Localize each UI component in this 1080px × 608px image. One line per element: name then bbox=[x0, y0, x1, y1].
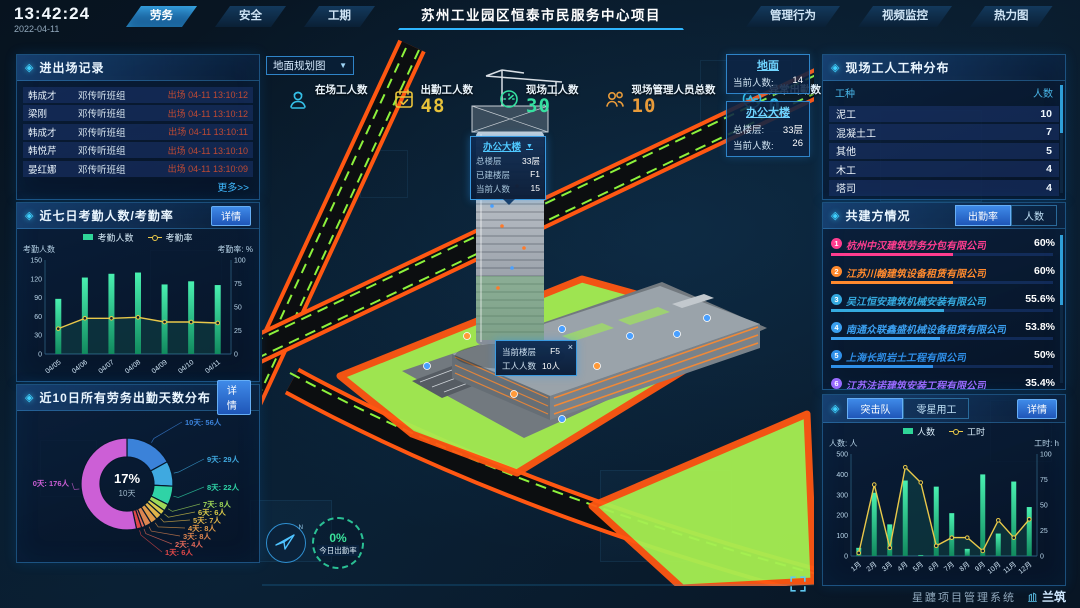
exit-event: 出场 04-11 13:10:11 bbox=[168, 125, 248, 138]
right-tab-group: 管理行为视频监控热力图 bbox=[746, 6, 1053, 27]
team-name: 邓传听班组 bbox=[78, 106, 168, 120]
attendance-chart: 0306090120150025507510004/0504/0604/0704… bbox=[19, 254, 257, 378]
area-card-row: 当前人数:26 bbox=[733, 138, 803, 152]
squad-tab-group: 突击队零星用工 bbox=[847, 398, 969, 419]
area-card-1[interactable]: 办公大楼总楼层:33层当前人数:26 bbox=[726, 101, 810, 157]
stat-value bbox=[315, 97, 368, 116]
svg-text:0: 0 bbox=[1040, 554, 1044, 561]
entry-exit-row: 晏红娜邓传听班组出场 04-11 13:10:09 bbox=[23, 161, 253, 177]
legend-考勤人数: 考勤人数 bbox=[83, 231, 133, 244]
attendance-left-axis-label: 考勤人数 bbox=[23, 244, 55, 254]
svg-text:7月: 7月 bbox=[942, 560, 956, 573]
area-card-value: 33层 bbox=[783, 122, 803, 136]
attendance-legend: 考勤人数考勤率 bbox=[17, 231, 259, 244]
rank-badge: 2 bbox=[831, 266, 842, 277]
trade-count: 7 bbox=[1046, 126, 1052, 138]
trades-col-type: 工种 bbox=[835, 85, 855, 100]
svg-text:25: 25 bbox=[234, 328, 242, 335]
clock-time: 13:42:24 bbox=[14, 4, 90, 24]
dashboard-root: 13:42:24 2022-04-11 劳务安全工期 苏州工业园区恒泰市民服务中… bbox=[0, 0, 1080, 608]
topbar-tab-left-0[interactable]: 劳务 bbox=[126, 6, 197, 27]
svg-text:400: 400 bbox=[836, 472, 848, 479]
company-name: 杭州中汉建筑劳务分包有限公司 bbox=[846, 237, 986, 252]
tooltip-label: 当前楼层 bbox=[502, 346, 536, 358]
site-stats-row: 在场工人数出勤工人数48现场工人数30现场管理人员总数10异常出勤数0 bbox=[286, 82, 796, 116]
panel-trades-title: 现场工人工种分布 bbox=[845, 59, 949, 76]
topbar: 13:42:24 2022-04-11 劳务安全工期 苏州工业园区恒泰市民服务中… bbox=[0, 0, 1080, 38]
vendor-logo: 兰筑 bbox=[1026, 588, 1066, 605]
stat-text: 现场管理人员总数10 bbox=[632, 82, 716, 116]
rank-badge: 6 bbox=[831, 378, 842, 389]
svg-text:04/10: 04/10 bbox=[177, 359, 195, 375]
entry-exit-row: 韩悦芹邓传听班组出场 04-11 13:10:10 bbox=[23, 142, 253, 158]
gauge-icon bbox=[497, 87, 521, 111]
svg-text:75: 75 bbox=[234, 281, 242, 288]
donut-label-0天: 0天: 176人 bbox=[33, 479, 70, 488]
vendor-logo-text: 兰筑 bbox=[1042, 588, 1066, 605]
partners-tab-group: 出勤率人数 bbox=[955, 205, 1057, 226]
attendance-days-donut: 10天: 56人9天: 29人8天: 22人7天: 8人6天: 6人5天: 7人… bbox=[17, 411, 259, 561]
squad-legend: 人数工时 bbox=[823, 425, 1065, 438]
stat-gauge: 现场工人数30 bbox=[497, 82, 579, 116]
partner-row[interactable]: 2江苏川翰建筑设备租赁有限公司60% bbox=[831, 263, 1055, 290]
trade-name: 泥工 bbox=[836, 106, 856, 121]
stat-text: 现场工人数30 bbox=[526, 82, 579, 116]
panel-diamond-icon: ◈ bbox=[831, 402, 839, 415]
team-name: 邓传听班组 bbox=[78, 88, 168, 102]
rate-bar-fill bbox=[831, 309, 944, 312]
svg-text:100: 100 bbox=[1040, 452, 1052, 459]
svg-text:04/06: 04/06 bbox=[71, 359, 89, 375]
trade-name: 其他 bbox=[836, 143, 856, 158]
building-tooltip-title: 办公大楼 bbox=[483, 139, 521, 153]
area-card-label: 当前人数: bbox=[733, 138, 774, 152]
svg-text:3月: 3月 bbox=[880, 560, 894, 573]
stat-value: 48 bbox=[421, 97, 474, 116]
worker-name: 梁刚 bbox=[28, 106, 78, 120]
attendance-detail-button[interactable]: 详情 bbox=[211, 206, 251, 226]
stat-calendar-check: 出勤工人数48 bbox=[392, 82, 474, 116]
rate-bar bbox=[831, 365, 1053, 368]
trade-count: 4 bbox=[1046, 182, 1052, 194]
stat-label: 在场工人数 bbox=[315, 82, 368, 97]
trades-col-count: 人数 bbox=[1033, 85, 1053, 100]
squad-detail-button[interactable]: 详情 bbox=[1017, 399, 1057, 419]
rank-badge: 3 bbox=[831, 294, 842, 305]
area-card-value: 14 bbox=[792, 75, 803, 89]
rate-bar bbox=[831, 337, 1053, 340]
attendance-rate: 35.4% bbox=[1025, 377, 1055, 389]
close-icon[interactable]: × bbox=[568, 342, 573, 352]
worker-name: 韩成才 bbox=[28, 125, 78, 139]
rate-bar bbox=[831, 281, 1053, 284]
compass-north-label: N bbox=[299, 525, 303, 531]
area-card-row: 总楼层:33层 bbox=[733, 122, 803, 136]
compass-control[interactable]: N bbox=[266, 523, 306, 563]
area-card-row: 当前人数:14 bbox=[733, 75, 803, 89]
area-card-label: 总楼层: bbox=[733, 122, 764, 136]
panel-attendance-title: 近七日考勤人数/考勤率 bbox=[39, 207, 173, 224]
tooltip-label: 总楼层 bbox=[476, 155, 502, 167]
page-title-text: 苏州工业园区恒泰市民服务中心项目 bbox=[421, 8, 661, 23]
worker-name: 韩成才 bbox=[28, 88, 78, 102]
panel-attendance: ◈ 近七日考勤人数/考勤率 详情 考勤人数考勤率 考勤人数 考勤率: % 030… bbox=[16, 202, 260, 382]
svg-text:200: 200 bbox=[836, 513, 848, 520]
area-card-value: 26 bbox=[792, 138, 803, 152]
svg-text:100: 100 bbox=[234, 258, 246, 265]
trade-count: 4 bbox=[1046, 163, 1052, 175]
svg-text:04/05: 04/05 bbox=[44, 359, 62, 375]
panel-trades: ◈ 现场工人工种分布 工种 人数 泥工10混凝土工7其他5木工4塔司4 bbox=[822, 54, 1066, 200]
squad-tab-1[interactable]: 零星用工 bbox=[903, 398, 969, 419]
legend-工时: 工时 bbox=[949, 425, 985, 438]
panel-distribution-title: 近10日所有劳务出勤天数分布 bbox=[39, 389, 210, 406]
entry-exit-more-link[interactable]: 更多>> bbox=[17, 179, 249, 194]
panel-partners-title: 共建方情况 bbox=[845, 207, 910, 224]
svg-text:2月: 2月 bbox=[865, 560, 879, 573]
svg-text:0: 0 bbox=[844, 554, 848, 561]
trade-row: 木工4 bbox=[829, 161, 1059, 177]
tooltip-label: 已建楼层 bbox=[476, 169, 510, 181]
stat-text: 在场工人数 bbox=[315, 82, 368, 116]
svg-text:30: 30 bbox=[34, 333, 42, 340]
fullscreen-button[interactable] bbox=[790, 576, 806, 592]
svg-text:300: 300 bbox=[836, 492, 848, 499]
panel-diamond-icon: ◈ bbox=[25, 209, 33, 222]
attendance-rate: 50% bbox=[1034, 349, 1055, 361]
exit-event: 出场 04-11 13:10:10 bbox=[168, 144, 248, 157]
topbar-tab-right-1[interactable]: 视频监控 bbox=[858, 6, 952, 27]
exit-event: 出场 04-11 13:10:12 bbox=[168, 107, 248, 120]
tooltip-label: 当前人数 bbox=[476, 183, 510, 195]
area-cards: 地面当前人数:14办公大楼总楼层:33层当前人数:26 bbox=[726, 54, 810, 157]
legend-考勤率: 考勤率 bbox=[148, 231, 193, 244]
map-layer-select[interactable]: 地面规划图 ▼ bbox=[266, 56, 354, 75]
company-name: 上海长凯岩土工程有限公司 bbox=[846, 349, 966, 364]
panel-diamond-icon: ◈ bbox=[831, 209, 839, 222]
donut-label-10天: 10天: 56人 bbox=[185, 418, 222, 427]
panel-squad: ◈ 突击队零星用工 详情 人数工时 人数: 人 工时: h 0100200300… bbox=[822, 394, 1066, 586]
area-card-0[interactable]: 地面当前人数:14 bbox=[726, 54, 810, 94]
donut-center-percent: 17% bbox=[114, 471, 140, 486]
worker-name: 晏红娜 bbox=[28, 162, 78, 176]
team-name: 邓传听班组 bbox=[78, 125, 168, 139]
company-name: 吴江恒安建筑机械安装有限公司 bbox=[846, 293, 986, 308]
entry-exit-row: 韩成才邓传听班组出场 04-11 13:10:12 bbox=[23, 87, 253, 103]
panel-entry-exit: ◈ 进出场记录 韩成才邓传听班组出场 04-11 13:10:12梁刚邓传听班组… bbox=[16, 54, 260, 200]
attendance-rate: 60% bbox=[1034, 237, 1055, 249]
team-name: 邓传听班组 bbox=[78, 143, 168, 157]
panel-partners: ◈ 共建方情况 出勤率人数 1杭州中汉建筑劳务分包有限公司60%2江苏川翰建筑设… bbox=[822, 202, 1066, 390]
calendar-check-icon bbox=[392, 87, 416, 111]
attendance-rate: 53.8% bbox=[1025, 321, 1055, 333]
panel-diamond-icon: ◈ bbox=[25, 391, 33, 404]
svg-text:4月: 4月 bbox=[896, 560, 910, 573]
svg-text:0: 0 bbox=[38, 352, 42, 359]
distribution-detail-button[interactable]: 详情 bbox=[217, 380, 251, 415]
tooltip-label: 工人人数 bbox=[502, 360, 536, 372]
topbar-tab-right-2[interactable]: 热力图 bbox=[970, 6, 1053, 27]
squad-right-axis-label: 工时: h bbox=[1034, 438, 1059, 448]
svg-text:50: 50 bbox=[1040, 503, 1048, 510]
floor-tooltip: × 当前楼层F5 工人人数10人 bbox=[495, 340, 577, 376]
partner-row[interactable]: 6江苏法诺建筑安装工程有限公司35.4% bbox=[831, 375, 1055, 390]
trade-row: 塔司4 bbox=[829, 180, 1059, 196]
tooltip-value: 15 bbox=[531, 183, 540, 195]
stat-value: 10 bbox=[632, 97, 716, 116]
partners-scrollbar[interactable] bbox=[1060, 235, 1063, 383]
squad-left-axis-label: 人数: 人 bbox=[829, 438, 857, 448]
svg-text:60: 60 bbox=[34, 314, 42, 321]
trade-name: 混凝土工 bbox=[836, 125, 876, 140]
rank-badge: 5 bbox=[831, 350, 842, 361]
stat-people: 现场管理人员总数10 bbox=[603, 82, 716, 116]
rate-bar-fill bbox=[831, 281, 953, 284]
company-name: 南通众联鑫盛机械设备租赁有限公司 bbox=[846, 321, 1006, 336]
entry-exit-row: 梁刚邓传听班组出场 04-11 13:10:12 bbox=[23, 105, 253, 121]
squad-chart: 010020030040050002550751001月2月3月4月5月6月7月… bbox=[825, 448, 1063, 580]
topbar-tab-left-1[interactable]: 安全 bbox=[215, 6, 286, 27]
clock: 13:42:24 2022-04-11 bbox=[14, 4, 90, 34]
rank-badge: 4 bbox=[831, 322, 842, 333]
partners-list: 1杭州中汉建筑劳务分包有限公司60%2江苏川翰建筑设备租赁有限公司60%3吴江恒… bbox=[823, 229, 1065, 390]
partner-row[interactable]: 5上海长凯岩土工程有限公司50% bbox=[831, 347, 1055, 374]
donut-label-8天: 8天: 22人 bbox=[207, 483, 240, 492]
footer: 星躔项目管理系统 兰筑 bbox=[912, 588, 1066, 605]
donut-label-1天: 1天: 6人 bbox=[165, 548, 193, 557]
tooltip-value: 33层 bbox=[522, 155, 540, 167]
gauge-label: 今日出勤率 bbox=[317, 545, 359, 556]
attendance-rate: 60% bbox=[1034, 265, 1055, 277]
svg-text:90: 90 bbox=[34, 295, 42, 302]
svg-text:1月: 1月 bbox=[849, 560, 863, 573]
svg-text:150: 150 bbox=[30, 258, 42, 265]
svg-text:11月: 11月 bbox=[1002, 560, 1018, 575]
map-layer-select-value: 地面规划图 bbox=[273, 58, 326, 73]
svg-text:120: 120 bbox=[30, 276, 42, 283]
panel-entry-exit-title: 进出场记录 bbox=[39, 59, 104, 76]
svg-text:12月: 12月 bbox=[1017, 560, 1034, 575]
svg-text:75: 75 bbox=[1040, 477, 1048, 484]
trades-scrollbar[interactable] bbox=[1060, 85, 1063, 193]
svg-text:10月: 10月 bbox=[986, 560, 1003, 575]
area-card-label: 当前人数: bbox=[733, 75, 774, 89]
attendance-rate: 55.6% bbox=[1025, 293, 1055, 305]
trade-name: 木工 bbox=[836, 162, 856, 177]
svg-text:04/07: 04/07 bbox=[98, 359, 116, 375]
exit-event: 出场 04-11 13:10:12 bbox=[168, 88, 248, 101]
worker-name: 韩悦芹 bbox=[28, 143, 78, 157]
donut-label-9天: 9天: 29人 bbox=[207, 455, 240, 464]
svg-text:04/08: 04/08 bbox=[124, 359, 142, 375]
company-name: 江苏法诺建筑安装工程有限公司 bbox=[846, 377, 986, 390]
trade-count: 10 bbox=[1040, 108, 1052, 120]
partner-row[interactable]: 3吴江恒安建筑机械安装有限公司55.6% bbox=[831, 291, 1055, 318]
entry-exit-list: 韩成才邓传听班组出场 04-11 13:10:12梁刚邓传听班组出场 04-11… bbox=[17, 81, 259, 177]
panel-diamond-icon: ◈ bbox=[831, 61, 839, 74]
rank-badge: 1 bbox=[831, 238, 842, 249]
lawn-parcel bbox=[592, 414, 814, 586]
building-icon bbox=[1026, 590, 1039, 603]
trades-list: 泥工10混凝土工7其他5木工4塔司4 bbox=[823, 106, 1065, 196]
panel-distribution: ◈ 近10日所有劳务出勤天数分布 详情 10天: 56人9天: 29人8天: 2… bbox=[16, 384, 260, 563]
svg-text:8月: 8月 bbox=[958, 560, 972, 573]
entry-exit-row: 韩成才邓传听班组出场 04-11 13:10:11 bbox=[23, 124, 253, 140]
left-tab-group: 劳务安全工期 bbox=[126, 6, 375, 27]
attendance-right-axis-label: 考勤率: % bbox=[217, 244, 253, 254]
trade-row: 其他5 bbox=[829, 143, 1059, 159]
svg-text:04/09: 04/09 bbox=[151, 359, 169, 375]
rate-bar-fill bbox=[831, 253, 953, 256]
trade-count: 5 bbox=[1046, 145, 1052, 157]
tooltip-value: F1 bbox=[530, 169, 540, 181]
svg-text:50: 50 bbox=[234, 305, 242, 312]
system-name: 星躔项目管理系统 bbox=[912, 589, 1016, 605]
collapse-caret-icon[interactable]: ▼ bbox=[526, 143, 533, 150]
tooltip-value: 10人 bbox=[542, 360, 560, 372]
partner-row[interactable]: 4南通众联鑫盛机械设备租赁有限公司53.8% bbox=[831, 319, 1055, 346]
today-attendance-gauge: 0% 今日出勤率 bbox=[312, 517, 364, 569]
squad-tab-0[interactable]: 突击队 bbox=[847, 398, 903, 419]
svg-text:500: 500 bbox=[836, 452, 848, 459]
svg-text:5月: 5月 bbox=[911, 560, 925, 573]
clock-date: 2022-04-11 bbox=[14, 24, 90, 34]
rate-bar-fill bbox=[831, 337, 940, 340]
topbar-tab-left-2[interactable]: 工期 bbox=[304, 6, 375, 27]
panel-diamond-icon: ◈ bbox=[25, 61, 33, 74]
company-name: 江苏川翰建筑设备租赁有限公司 bbox=[846, 265, 986, 280]
exit-event: 出场 04-11 13:10:09 bbox=[168, 162, 248, 175]
trade-row: 泥工10 bbox=[829, 106, 1059, 122]
area-card-title: 地面 bbox=[733, 57, 803, 73]
svg-text:6月: 6月 bbox=[927, 560, 941, 573]
svg-text:100: 100 bbox=[836, 533, 848, 540]
chevron-down-icon: ▼ bbox=[339, 61, 347, 70]
rate-bar-fill bbox=[831, 365, 933, 368]
stat-worker: 在场工人数 bbox=[286, 82, 368, 116]
stat-text: 出勤工人数48 bbox=[421, 82, 474, 116]
trade-name: 塔司 bbox=[836, 180, 856, 195]
building-tooltip: 办公大楼 ▼ 总楼层33层 已建楼层F1 当前人数15 bbox=[470, 136, 546, 200]
compass-icon bbox=[272, 529, 298, 555]
trade-row: 混凝土工7 bbox=[829, 124, 1059, 140]
people-icon bbox=[603, 87, 627, 111]
stat-value: 30 bbox=[526, 97, 579, 116]
svg-text:9月: 9月 bbox=[973, 560, 987, 573]
topbar-tab-right-0[interactable]: 管理行为 bbox=[746, 6, 840, 27]
partners-tab-0[interactable]: 出勤率 bbox=[955, 205, 1011, 226]
rate-bar bbox=[831, 253, 1053, 256]
rate-bar bbox=[831, 309, 1053, 312]
partner-row[interactable]: 1杭州中汉建筑劳务分包有限公司60% bbox=[831, 235, 1055, 262]
team-name: 邓传听班组 bbox=[78, 162, 168, 176]
page-title: 苏州工业园区恒泰市民服务中心项目 bbox=[398, 3, 684, 30]
svg-text:25: 25 bbox=[1040, 528, 1048, 535]
svg-text:0: 0 bbox=[234, 352, 238, 359]
area-card-title: 办公大楼 bbox=[733, 104, 803, 120]
partners-tab-1[interactable]: 人数 bbox=[1011, 205, 1057, 226]
gauge-value: 0% bbox=[329, 531, 346, 545]
svg-text:04/11: 04/11 bbox=[204, 359, 222, 375]
donut-center-name: 10天 bbox=[119, 489, 136, 498]
fullscreen-icon bbox=[790, 576, 806, 592]
tooltip-value: F5 bbox=[550, 346, 560, 358]
legend-人数: 人数 bbox=[903, 425, 935, 438]
worker-icon bbox=[286, 87, 310, 111]
